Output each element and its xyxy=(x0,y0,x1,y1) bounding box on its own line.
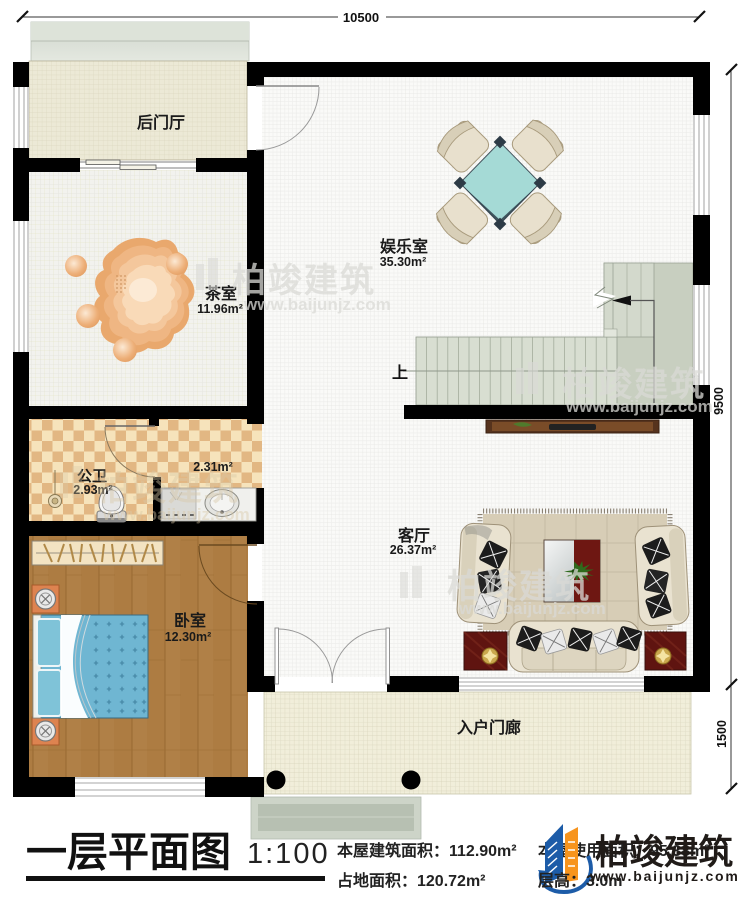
svg-text:12.30m²: 12.30m² xyxy=(165,630,212,644)
svg-text:占地面积：120.72m²: 占地面积：120.72m² xyxy=(337,871,486,890)
svg-text:柏竣建筑: 柏竣建筑 xyxy=(96,469,240,508)
svg-text:柏竣建筑: 柏竣建筑 xyxy=(595,833,733,872)
svg-text:www.baijunjz.com: www.baijunjz.com xyxy=(458,599,606,618)
svg-text:9500: 9500 xyxy=(712,387,726,415)
svg-text:娱乐室: 娱乐室 xyxy=(380,237,428,256)
svg-text:26.37m²: 26.37m² xyxy=(390,543,437,557)
svg-text:后门厅: 后门厅 xyxy=(137,113,185,132)
svg-text:www.baijunjz.com: www.baijunjz.com xyxy=(102,505,250,524)
svg-text:11.96m²: 11.96m² xyxy=(197,302,243,316)
svg-text:卧室: 卧室 xyxy=(174,611,206,630)
svg-text:10500: 10500 xyxy=(343,10,379,25)
svg-text:上: 上 xyxy=(392,364,408,382)
svg-text:一层平面图: 一层平面图 xyxy=(26,829,231,875)
svg-text:本屋建筑面积：112.90m²: 本屋建筑面积：112.90m² xyxy=(337,841,517,860)
svg-text:35.30m²: 35.30m² xyxy=(380,255,427,269)
svg-text:入户门廊: 入户门廊 xyxy=(457,718,521,737)
svg-text:1:100: 1:100 xyxy=(247,838,330,870)
svg-text:www.baijunjz.com: www.baijunjz.com xyxy=(589,868,740,884)
svg-text:1500: 1500 xyxy=(715,720,729,748)
svg-text:www.baijunjz.com: www.baijunjz.com xyxy=(243,295,391,314)
svg-text:www.baijunjz.com: www.baijunjz.com xyxy=(565,397,713,416)
